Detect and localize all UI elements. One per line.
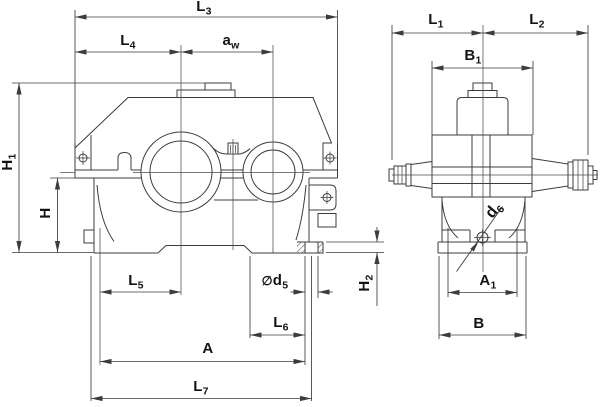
dim-label-H2: H2 bbox=[357, 274, 375, 291]
dim-label-L2: L2 bbox=[529, 12, 545, 30]
dim-label-L7: L7 bbox=[193, 379, 209, 397]
side-body-block bbox=[432, 135, 532, 197]
dim-label-B: B bbox=[473, 316, 484, 334]
drawing-canvas bbox=[0, 0, 600, 407]
foot-section-hatch bbox=[318, 242, 323, 253]
left-lug bbox=[84, 230, 94, 243]
dipstick-boss bbox=[118, 153, 131, 171]
base-outline bbox=[94, 242, 323, 253]
front-housing-outline bbox=[75, 98, 338, 179]
dim-label-L4: L4 bbox=[120, 33, 136, 51]
dim-label-B1: B1 bbox=[464, 48, 481, 66]
dim-label-A: A bbox=[202, 341, 213, 359]
dim-label-L6: L6 bbox=[273, 315, 289, 333]
dim-label-H: H bbox=[38, 207, 56, 218]
inspection-cover bbox=[177, 83, 235, 98]
dim-label-L5: L5 bbox=[128, 273, 144, 291]
right-gusset bbox=[296, 185, 306, 240]
drawing-sheet: L3 L4 aw H1 H L5 ∅d5 L6 A L7 H2 L1 L2 B1… bbox=[0, 0, 600, 407]
front-view bbox=[75, 83, 338, 253]
dim-label-L3: L3 bbox=[196, 0, 212, 17]
dim-label-L1: L1 bbox=[428, 12, 444, 30]
dim-label-A1: A1 bbox=[479, 273, 496, 291]
foot-section-hatch bbox=[297, 242, 305, 253]
side-cap bbox=[457, 83, 508, 135]
left-gusset bbox=[97, 185, 114, 242]
dim-label-d5: ∅d5 bbox=[262, 273, 289, 291]
right-lug bbox=[318, 214, 336, 228]
side-view bbox=[389, 83, 597, 272]
dim-label-aw: aw bbox=[222, 33, 239, 51]
front-walls-feet bbox=[84, 178, 336, 253]
dim-label-H1: H1 bbox=[0, 153, 18, 170]
centerlines bbox=[60, 25, 598, 365]
